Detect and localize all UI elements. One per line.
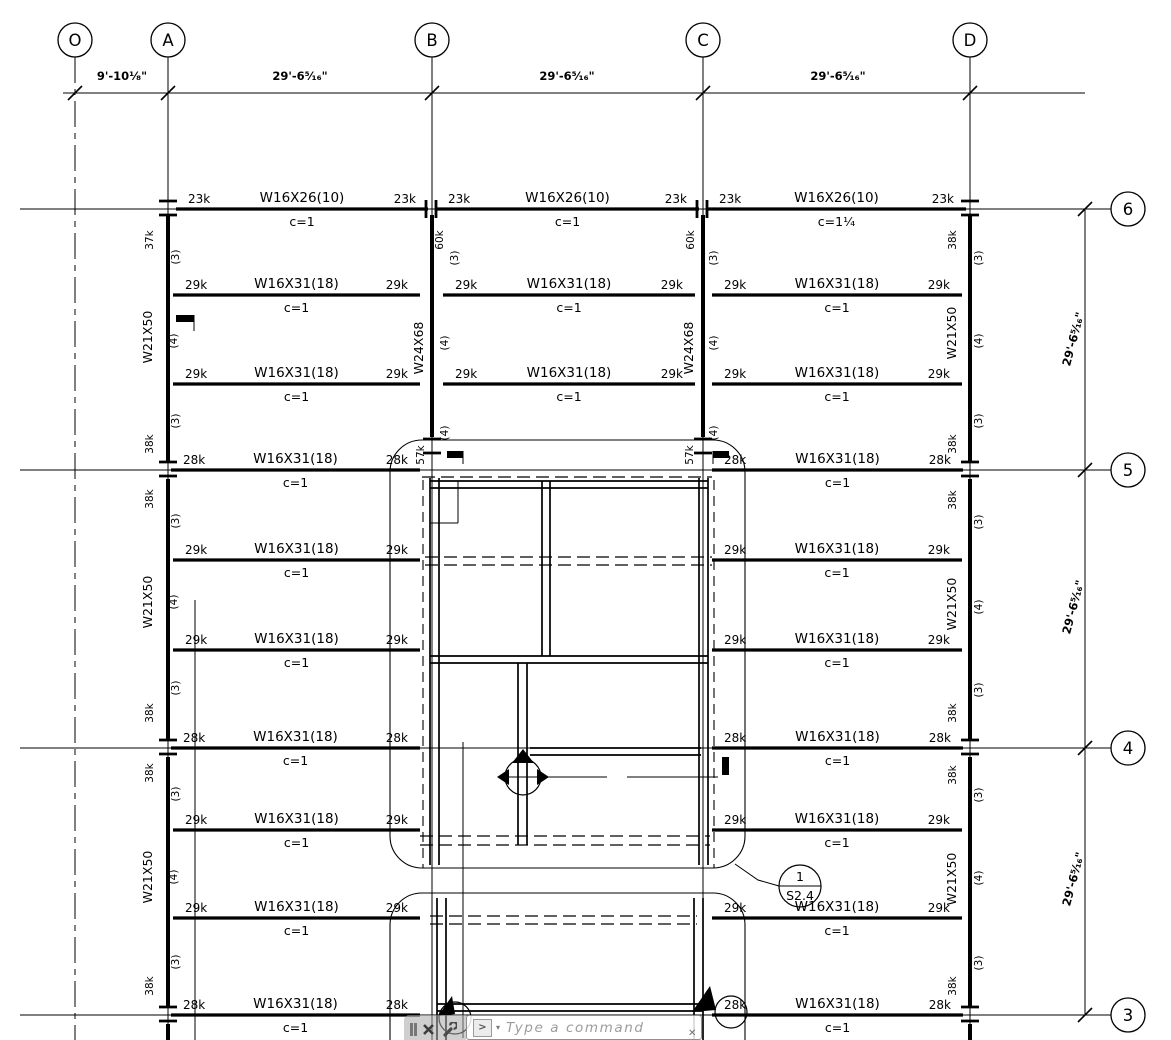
beam: 28k28kW16X31(18)c=1 [712,996,963,1035]
beam-end-reaction: 23k [188,192,210,206]
column-reaction-label: 38k [947,702,959,722]
beam-end-reaction: 28k [386,453,408,467]
column-reaction-label: (3) [170,787,182,802]
beam-camber-label: c=1 [284,835,309,850]
beam-size-label: W16X31(18) [795,631,880,647]
grid-bubble-B: B [415,23,449,57]
beam-end-reaction: 23k [932,192,954,206]
column-reaction-label: 38k [947,975,959,995]
bubble-label: 5 [1123,461,1134,480]
beam-camber-label: c=1 [284,923,309,938]
grid-bubble-6: 6 [1111,192,1145,226]
beam-end-reaction: 29k [724,633,746,647]
beam-end-reaction: 29k [185,813,207,827]
beam-size-label: W16X31(18) [795,729,880,745]
dimension-text: 29'-6⁵⁄₁₆" [272,69,327,83]
moment-flag [176,315,194,322]
beam-camber-label: c=1 [284,300,309,315]
column-reaction-label: (3) [973,683,985,698]
beam-camber-label: c=1 [556,300,581,315]
bubble-label: 4 [1123,739,1134,758]
bubble-label: D [964,31,977,50]
beam: 28k28kW16X31(18)c=1 [712,451,963,490]
column-reaction-label: 38k [144,975,156,995]
beam-camber-label: c=1 [825,475,850,490]
beam-end-reaction: 29k [386,813,408,827]
beam-end-reaction: 29k [724,278,746,292]
cad-viewport: 9'-10¹⁄₈"29'-6⁵⁄₁₆"29'-6⁵⁄₁₆"29'-6⁵⁄₁₆"2… [0,0,1171,1040]
beam-end-reaction: 28k [386,731,408,745]
beam-size-label: W16X31(18) [527,276,612,292]
column-reaction-label: (4) [973,871,985,886]
column-reaction-label: 38k [144,762,156,782]
beam-camber-label: c=1 [824,300,849,315]
girder-size-label: W21X50 [944,307,959,360]
column-reaction-label: (3) [708,251,720,266]
column-reaction-label: (4) [708,426,720,441]
beam-end-reaction: 28k [183,998,205,1012]
beam: 28k28kW16X31(18)c=1 [712,729,963,768]
column-reaction-label: 60k [434,229,446,249]
section-callout: 1S2.4 [735,864,821,907]
beam-size-label: W16X31(18) [795,541,880,557]
beam-end-reaction: 29k [928,543,950,557]
beam-end-reaction: 29k [724,901,746,915]
column-reaction-label: 57k [684,444,696,464]
bubble-label: C [697,31,709,50]
beam-size-label: W16X26(10) [794,190,879,206]
callout-sheet: S2.4 [786,888,814,903]
beam: 23k23kW16X26(10)c=1¹⁄₄ [707,190,966,229]
girder-size-label: W21X50 [944,578,959,631]
beam-end-reaction: 28k [386,998,408,1012]
column-reaction-label: (3) [449,251,461,266]
beam: 29k29kW16X31(18)c=1 [712,631,962,670]
beam-end-reaction: 29k [455,367,477,381]
arrow-triangle [692,986,716,1012]
beam-end-reaction: 23k [394,192,416,206]
beam-size-label: W16X31(18) [253,729,338,745]
grid-bubble-5: 5 [1111,453,1145,487]
beam-end-reaction: 29k [386,278,408,292]
beam-camber-label: c=1 [284,565,309,580]
beam-camber-label: c=1 [556,389,581,404]
dimension-text: 29'-6⁵⁄₁₆" [1059,850,1087,907]
command-input[interactable]: > ▾ Type a command [466,1015,702,1040]
moment-flag [447,451,463,458]
beams: 23k23kW16X26(10)c=123k23kW16X26(10)c=123… [171,190,966,1035]
cursor-pickbox-icon: ✕ [688,1028,696,1039]
beam-end-reaction: 29k [386,367,408,381]
dimension-text: 29'-6⁵⁄₁₆" [1059,578,1087,635]
column-reaction-label: 38k [144,488,156,508]
beam: 29k29kW16X31(18)c=1 [712,811,962,850]
bubble-label: 3 [1123,1006,1134,1025]
beam-end-reaction: 29k [185,278,207,292]
beam: 29k29kW16X31(18)c=1 [173,899,420,938]
beam-end-reaction: 29k [661,278,683,292]
beam-camber-label: c=1 [825,1020,850,1035]
column-reaction-label: 38k [947,489,959,509]
bubble-label: O [69,31,82,50]
bubble-label: B [426,31,437,50]
column-reaction-label: (3) [973,788,985,803]
beam-size-label: W16X31(18) [527,365,612,381]
column-reaction-label: (3) [973,956,985,971]
beam: 29k29kW16X31(18)c=1 [173,276,420,315]
column-reaction-label: (3) [170,681,182,696]
beam-end-reaction: 29k [386,633,408,647]
beam-size-label: W16X31(18) [254,811,339,827]
girder-size-label: W24X68 [411,322,426,375]
arrow-triangle [512,749,534,763]
beam-camber-label: c=1 [824,565,849,580]
beam-camber-label: c=1 [825,753,850,768]
beam: 29k29kW16X31(18)c=1 [173,631,420,670]
beam-camber-label: c=1 [824,835,849,850]
beam: 28k28kW16X31(18)c=1 [171,996,420,1035]
beam-end-reaction: 23k [448,192,470,206]
column-reaction-label: 38k [144,433,156,453]
beam: 28k28kW16X31(18)c=1 [171,451,420,490]
column-reaction-label: (3) [170,414,182,429]
beam-end-reaction: 23k [665,192,687,206]
beam-end-reaction: 28k [183,731,205,745]
close-icon[interactable] [422,1023,435,1036]
beam-size-label: W16X31(18) [795,996,880,1012]
beam-end-reaction: 28k [183,453,205,467]
column-reaction-label: 38k [947,229,959,249]
beam-end-reaction: 28k [724,731,746,745]
grid-bubble-C: C [686,23,720,57]
column-reaction-label: (4) [168,870,180,885]
beam-camber-label: c=1 [289,214,314,229]
bubble-label: A [162,31,174,50]
girder-size-label: W24X68 [681,322,696,375]
dimension-text: 29'-6⁵⁄₁₆" [1059,310,1087,367]
column-reaction-label: 37k [144,229,156,249]
beam-size-label: W16X26(10) [260,190,345,206]
beam-camber-label: c=1 [555,214,580,229]
beam-end-reaction: 29k [724,367,746,381]
beam-end-reaction: 29k [455,278,477,292]
column-reaction-label: (4) [973,334,985,349]
column-reaction-label: (4) [168,595,180,610]
beam-camber-label: c=1 [824,655,849,670]
arrow-triangle [497,769,509,785]
beam-end-reaction: 29k [386,901,408,915]
section-symbol [497,749,549,795]
beam-size-label: W16X31(18) [254,541,339,557]
beam: 29k29kW16X31(18)c=1 [443,365,695,404]
beam: 29k29kW16X31(18)c=1 [712,276,962,315]
beam-end-reaction: 29k [185,543,207,557]
dimension-text: 9'-10¹⁄₈" [97,69,147,83]
command-bar-tools [404,1015,466,1040]
column-reaction-label: (4) [439,426,451,441]
hidden-lines [420,477,714,924]
beam-size-label: W16X31(18) [795,276,880,292]
beam-camber-label: c=1 [824,923,849,938]
beam-size-label: W16X31(18) [253,451,338,467]
bubble-label: 6 [1123,200,1134,219]
column-reaction-label: (3) [973,251,985,266]
beam-size-label: W16X31(18) [254,631,339,647]
beam-camber-label: c=1 [283,753,308,768]
beam-size-label: W16X26(10) [525,190,610,206]
beam-size-label: W16X31(18) [254,276,339,292]
moment-flag [722,757,729,775]
beam-end-reaction: 29k [928,367,950,381]
beam-size-label: W16X31(18) [253,996,338,1012]
beam-camber-label: c=1 [283,475,308,490]
column-reaction-label: (3) [973,414,985,429]
column-reaction-label: (3) [170,955,182,970]
beam: 29k29kW16X31(18)c=1 [173,541,420,580]
beam-camber-label: c=1¹⁄₄ [818,214,855,229]
beam-end-reaction: 29k [724,813,746,827]
beam: 29k29kW16X31(18)c=1 [712,365,962,404]
dimension-text: 29'-6⁵⁄₁₆" [539,69,594,83]
beam-end-reaction: 28k [929,998,951,1012]
dimension-text: 29'-6⁵⁄₁₆" [810,69,865,83]
column-reaction-label: (4) [973,600,985,615]
beam-end-reaction: 28k [929,731,951,745]
beam-end-reaction: 29k [185,901,207,915]
beam-end-reaction: 29k [185,367,207,381]
wrench-icon[interactable] [442,1022,457,1037]
beam-end-reaction: 29k [386,543,408,557]
beam-end-reaction: 29k [661,367,683,381]
girder-size-label: W21X50 [140,851,155,904]
beam-size-label: W16X31(18) [254,899,339,915]
beam: 29k29kW16X31(18)c=1 [712,541,962,580]
beam-camber-label: c=1 [284,655,309,670]
column-annotations: W21X50W21X50W21X50W24X68W24X68W21X50W21X… [140,229,985,995]
girder-size-label: W21X50 [944,853,959,906]
column-reaction-label: (3) [973,515,985,530]
command-placeholder: Type a command [506,1020,645,1036]
beam-size-label: W16X31(18) [254,365,339,381]
grid-bubble-3: 3 [1111,998,1145,1032]
beam-end-reaction: 29k [185,633,207,647]
drag-grip-icon[interactable] [410,1023,413,1036]
column-reaction-label: 57k [415,444,427,464]
framing-plan-canvas[interactable]: 9'-10¹⁄₈"29'-6⁵⁄₁₆"29'-6⁵⁄₁₆"29'-6⁵⁄₁₆"2… [0,0,1171,1040]
column-reaction-label: (4) [168,334,180,349]
beam-camber-label: c=1 [284,389,309,404]
beam: 29k29kW16X31(18)c=1 [712,899,962,938]
beam-camber-label: c=1 [283,1020,308,1035]
beam: 29k29kW16X31(18)c=1 [173,365,420,404]
walls [194,315,718,1040]
column-reaction-label: 60k [685,229,697,249]
column-reaction-label: 38k [947,764,959,784]
beam: 29k29kW16X31(18)c=1 [443,276,695,315]
command-bar[interactable]: > ▾ Type a command ✕ [404,1015,702,1040]
beam: 23k23kW16X26(10)c=1 [436,190,699,229]
callout-leader [735,864,779,886]
beam-end-reaction: 28k [929,453,951,467]
column-reaction-label: (4) [439,336,451,351]
beam-end-reaction: 23k [719,192,741,206]
chevron-down-icon[interactable]: ▾ [496,1023,500,1032]
beam-size-label: W16X31(18) [795,451,880,467]
beam-end-reaction: 28k [724,998,746,1012]
beam-size-label: W16X31(18) [795,365,880,381]
grid-bubble-A: A [151,23,185,57]
girder-size-label: W21X50 [140,311,155,364]
beam-end-reaction: 29k [928,813,950,827]
arrow-triangle [537,769,549,785]
beam: 29k29kW16X31(18)c=1 [173,811,420,850]
beam-end-reaction: 29k [724,543,746,557]
detail-region-boundary [390,440,745,868]
splice-marks [159,200,979,1021]
moment-flag [713,451,729,458]
beam: 23k23kW16X26(10)c=1 [176,190,428,229]
command-prompt-icon: > [473,1019,492,1037]
grid-bubble-D: D [953,23,987,57]
column-reaction-label: 38k [144,702,156,722]
grid-bubble-4: 4 [1111,731,1145,765]
beam-end-reaction: 29k [928,633,950,647]
beam-size-label: W16X31(18) [795,811,880,827]
callout-number: 1 [796,869,804,884]
beam: 28k28kW16X31(18)c=1 [171,729,420,768]
beam-camber-label: c=1 [824,389,849,404]
column-reaction-label: (4) [708,336,720,351]
column-reaction-label: (3) [170,250,182,265]
girder-size-label: W21X50 [140,576,155,629]
column-reaction-label: (3) [170,514,182,529]
beam-end-reaction: 29k [928,278,950,292]
column-reaction-label: 38k [947,433,959,453]
grid-bubble-O: O [58,23,92,57]
